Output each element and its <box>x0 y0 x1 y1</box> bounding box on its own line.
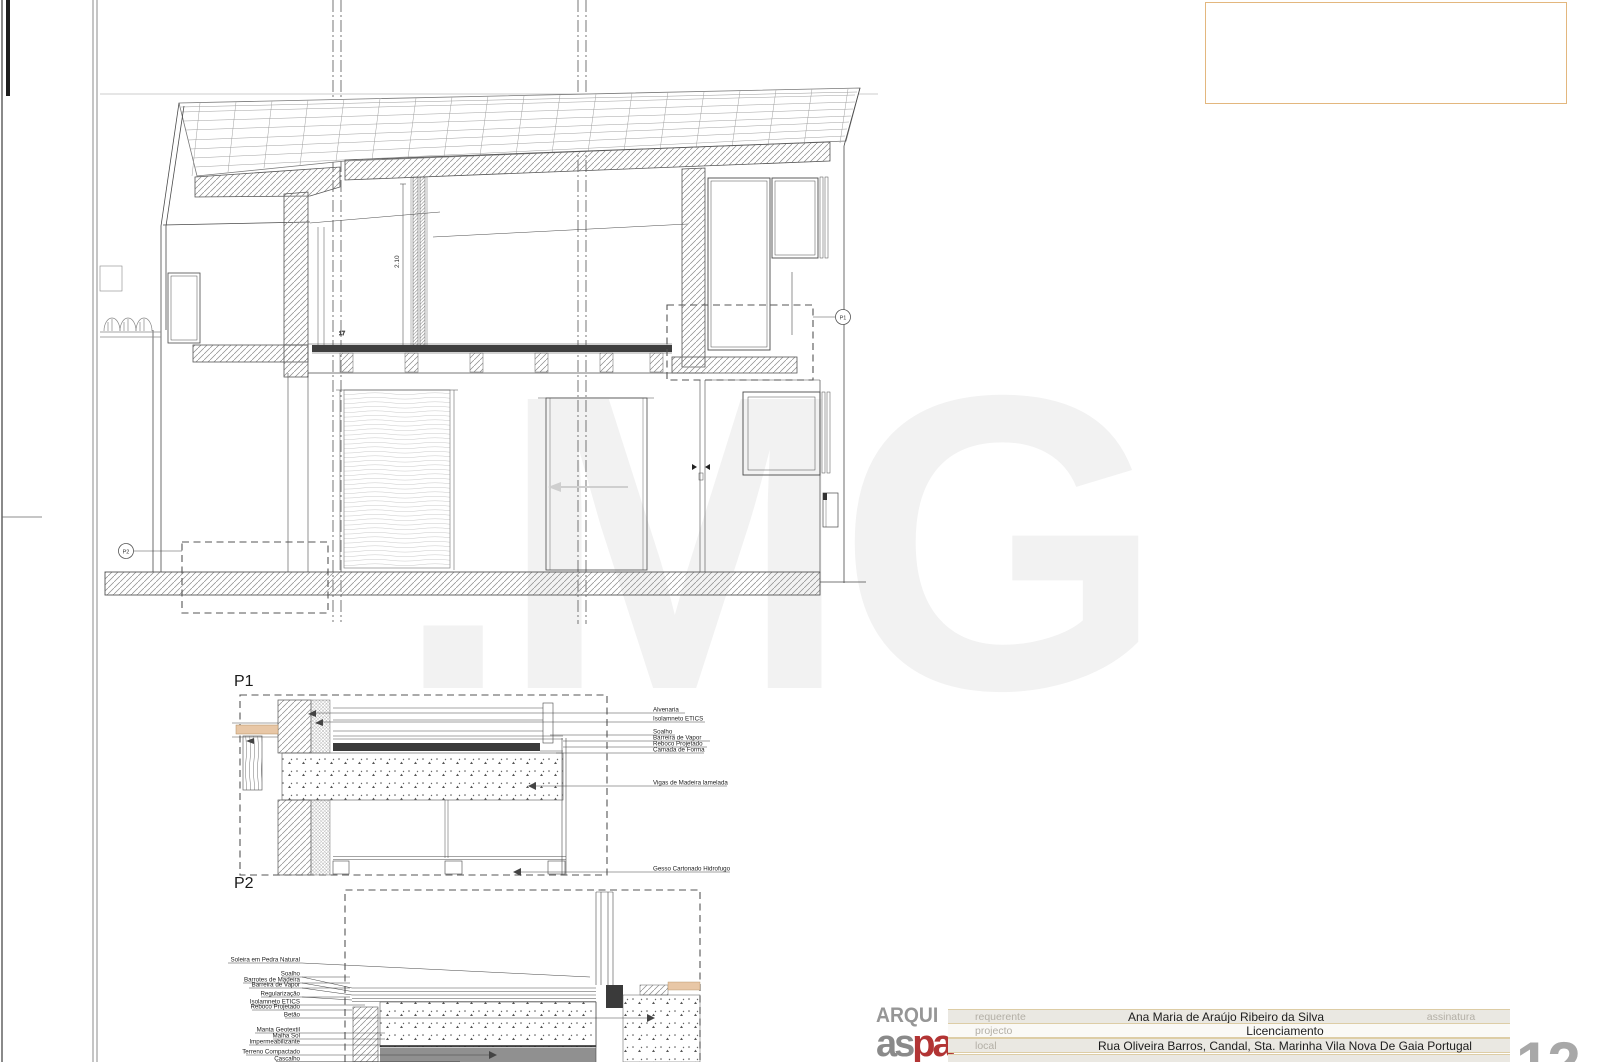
p2-labels: Soleira em Pedra Natural Soalho Barrotes… <box>231 957 301 1062</box>
section-drawing: .MG <box>0 0 1600 1062</box>
p1-label: Gesso Cartonado Hidrofugo <box>653 866 731 873</box>
callout-p2-label: P2 <box>123 550 130 556</box>
p2-label: Soleira em Pedra Natural <box>231 957 300 964</box>
watermark-text: .MG <box>395 309 1152 778</box>
callout-p1-label: P1 <box>840 316 847 322</box>
p2-detail: P2 <box>228 875 700 1062</box>
p1-label: Vigas de Madeira lamelada <box>653 780 728 787</box>
ground-slab <box>105 572 866 595</box>
sheet: .MG <box>0 0 1600 1062</box>
p1-label: Isolamneto ETICS <box>653 716 703 723</box>
p2-label: Barreira de Vapor <box>252 982 300 989</box>
neighbour-roof-tiles <box>100 318 161 337</box>
p2-label: Cascalho <box>274 1056 300 1062</box>
p2-detail-title: P2 <box>234 875 254 892</box>
p2-label: Reboco Projetado <box>250 1004 300 1011</box>
p1-label: Alvenaria <box>653 707 679 714</box>
p1-detail-title: P1 <box>234 673 254 690</box>
p2-label: Betão <box>284 1012 301 1019</box>
stamp-box <box>1205 2 1567 104</box>
p2-label: Terreno Compactado <box>242 1049 300 1056</box>
dim-small-text: 17 <box>339 331 345 337</box>
p1-label: Camada de Forma <box>653 747 705 754</box>
p2-label: Impermeabilizante <box>249 1039 300 1046</box>
dim-height-text: 2.10 <box>394 255 401 268</box>
sheet-frame <box>2 0 97 1062</box>
p2-label: Regularização <box>260 991 300 998</box>
